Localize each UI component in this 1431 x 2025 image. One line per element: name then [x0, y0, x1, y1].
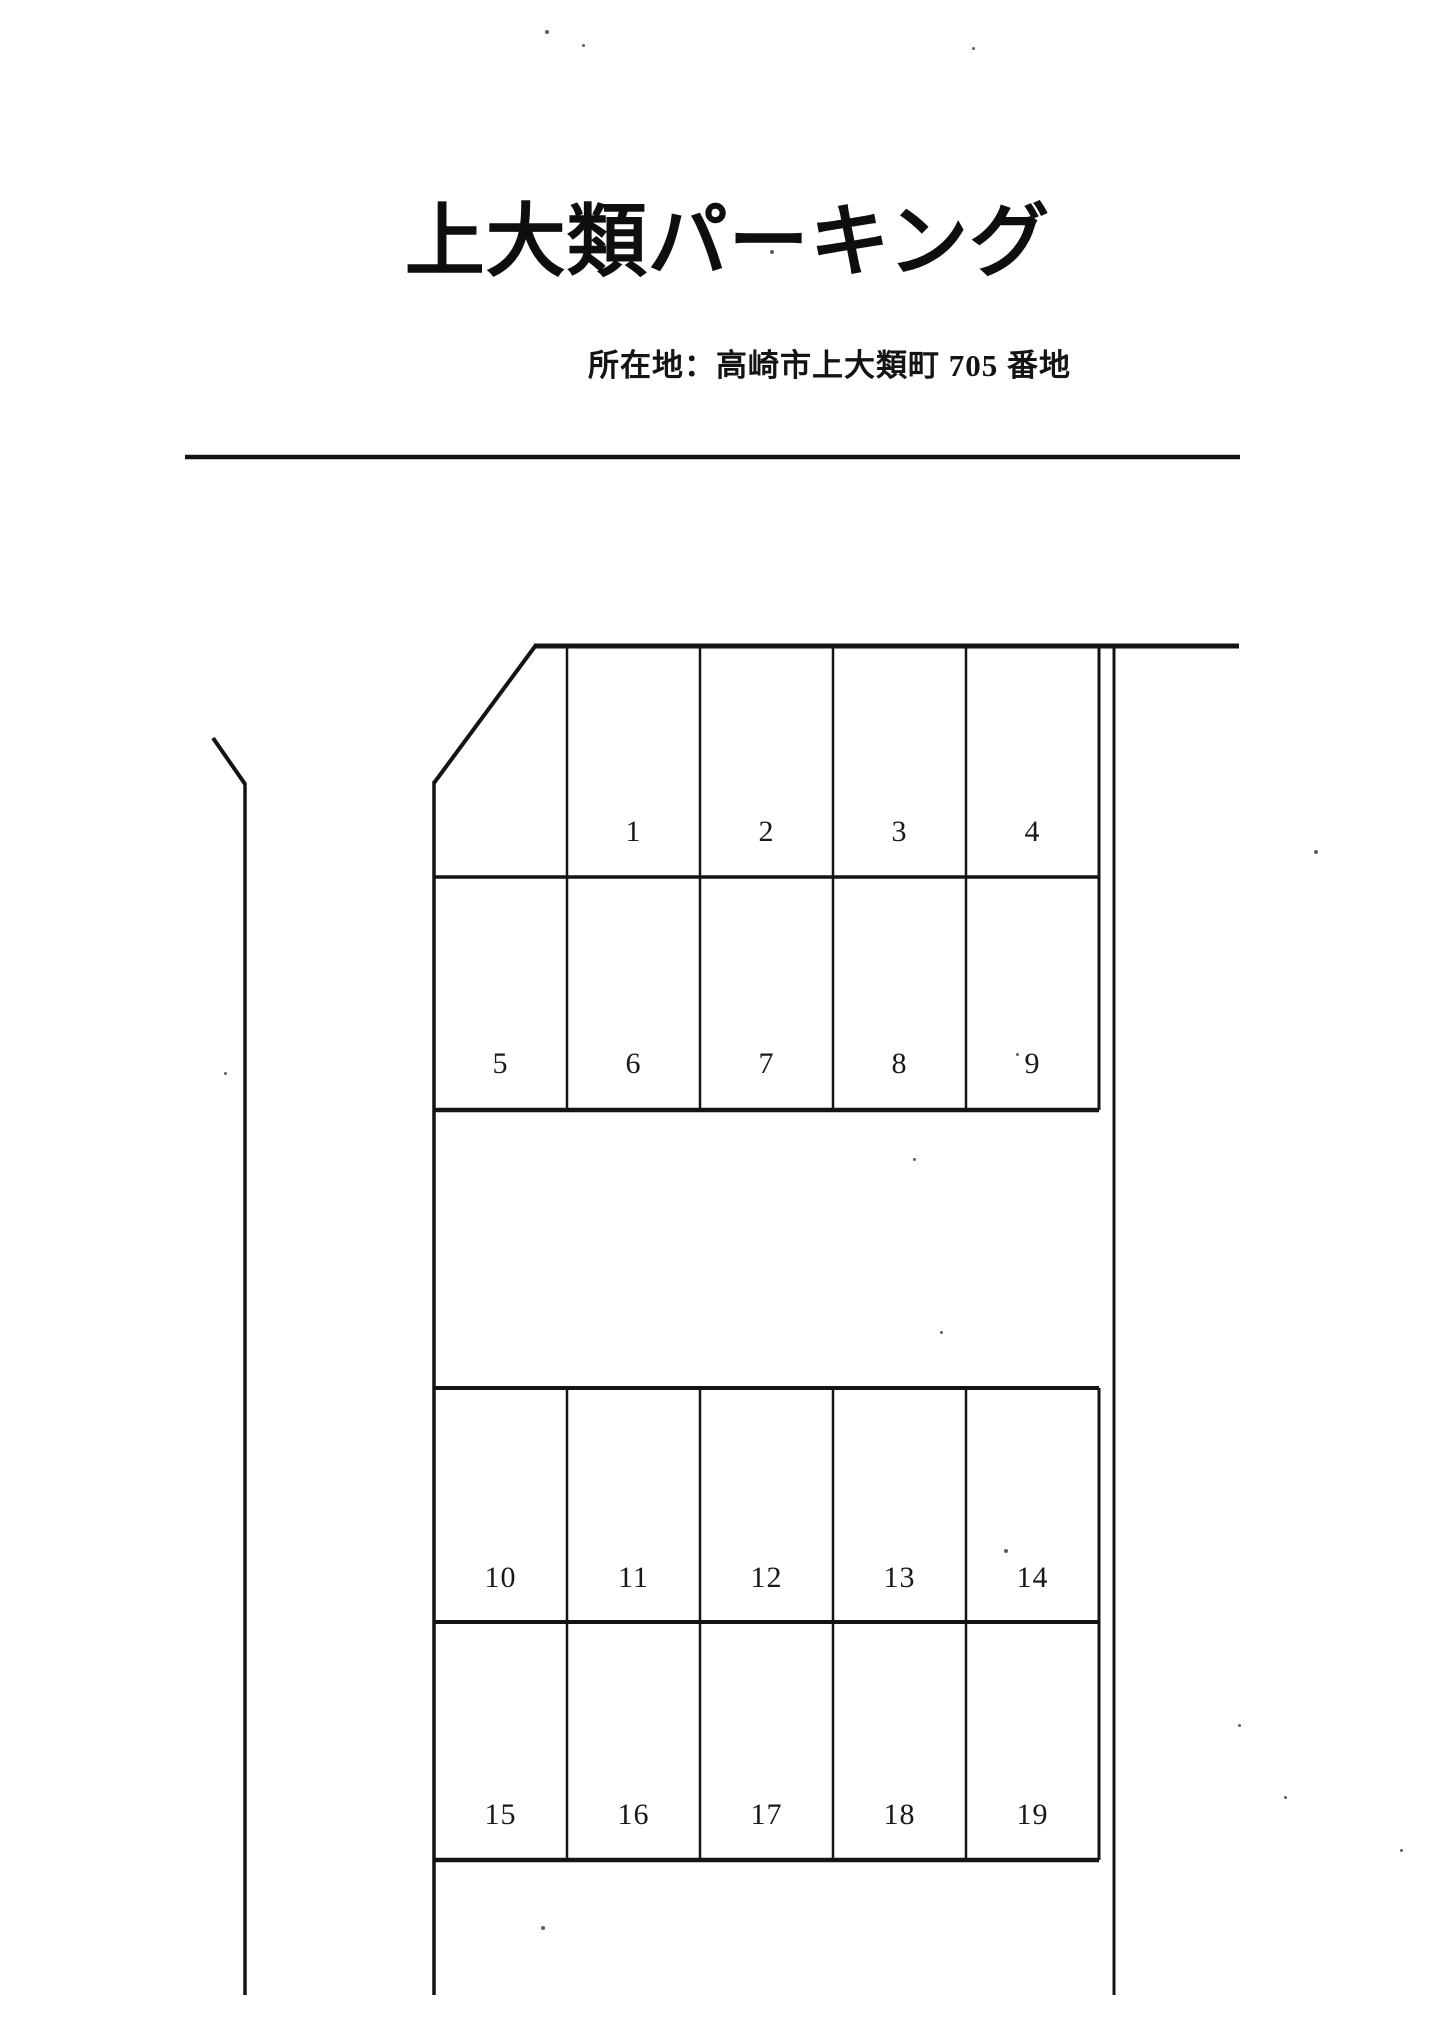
stall-3: 3	[833, 810, 966, 854]
stall-7: 7	[700, 1042, 833, 1086]
stall-5: 5	[434, 1042, 567, 1086]
stall-9: 9	[966, 1042, 1099, 1086]
stall-15: 15	[434, 1793, 567, 1837]
stall-19: 19	[966, 1793, 1099, 1837]
scan-speck	[913, 1158, 916, 1161]
page-title: 上大類パーキング	[0, 196, 1431, 288]
stall-2: 2	[700, 810, 833, 854]
scan-speck	[972, 47, 975, 50]
stall-12: 12	[700, 1556, 833, 1600]
stall-6: 6	[567, 1042, 700, 1086]
scan-speck	[1284, 1796, 1287, 1799]
parking-map-lines	[0, 0, 1431, 2025]
stall-11: 11	[567, 1556, 700, 1600]
scan-speck	[940, 1331, 943, 1334]
stall-10: 10	[434, 1556, 567, 1600]
scan-speck	[1004, 1549, 1008, 1553]
scan-speck	[541, 1926, 545, 1930]
scan-speck	[224, 1072, 227, 1075]
scan-speck	[1400, 1849, 1403, 1852]
scan-speck	[770, 250, 774, 254]
scanned-page: 上大類パーキング 所在地：高崎市上大類町 705 番地	[0, 0, 1431, 2025]
stall-4: 4	[966, 810, 1099, 854]
scan-speck	[1238, 1724, 1241, 1727]
stall-17: 17	[700, 1793, 833, 1837]
address-line: 所在地：高崎市上大類町 705 番地	[588, 347, 1071, 384]
stall-13: 13	[833, 1556, 966, 1600]
scan-speck	[545, 30, 549, 34]
scan-speck	[1314, 850, 1318, 854]
stall-18: 18	[833, 1793, 966, 1837]
stall-8: 8	[833, 1042, 966, 1086]
scan-speck	[1016, 1053, 1019, 1056]
stall-14: 14	[966, 1556, 1099, 1600]
stall-1: 1	[567, 810, 700, 854]
scan-speck	[582, 44, 585, 47]
stall-16: 16	[567, 1793, 700, 1837]
